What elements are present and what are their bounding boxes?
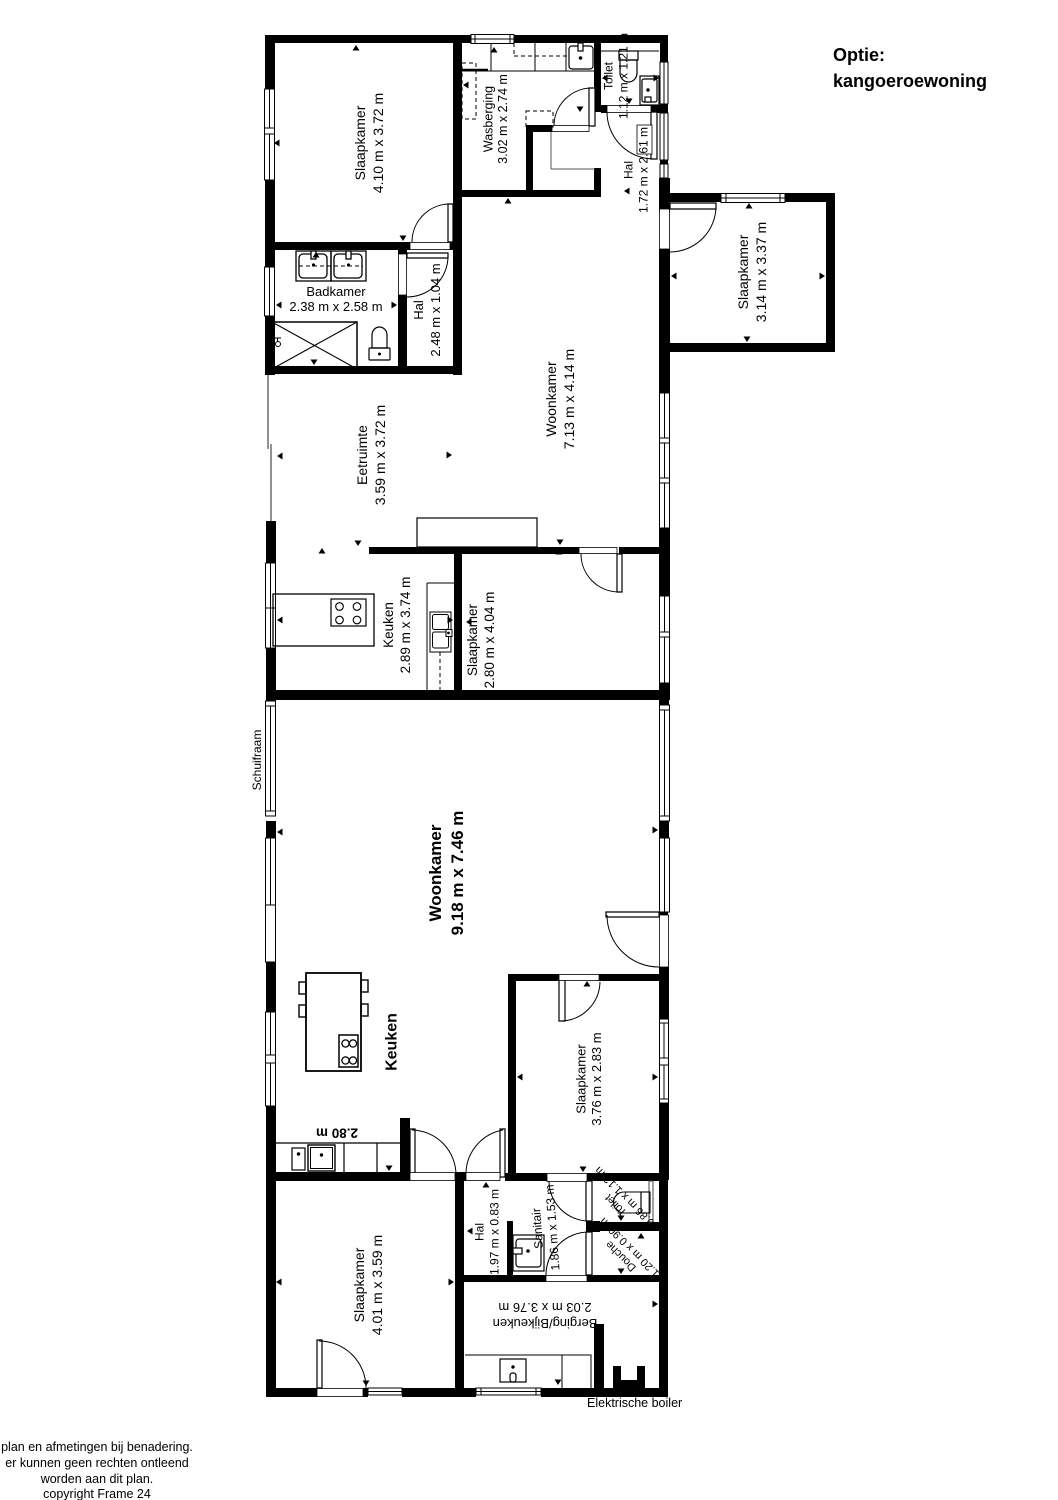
svg-text:Hal: Hal <box>411 300 426 320</box>
svg-text:4.01 m x 3.59 m: 4.01 m x 3.59 m <box>369 1235 385 1335</box>
svg-text:Hal: Hal <box>473 1223 487 1241</box>
svg-text:Optie:: Optie: <box>833 45 885 65</box>
svg-text:2.80 m: 2.80 m <box>316 1126 358 1141</box>
svg-text:Hal: Hal <box>622 161 636 179</box>
svg-text:3.76 m x 2.83 m: 3.76 m x 2.83 m <box>589 1032 604 1125</box>
svg-text:Badkamer: Badkamer <box>306 284 366 299</box>
svg-text:Elektrische boiler: Elektrische boiler <box>587 1396 682 1410</box>
svg-text:Slaapkamer: Slaapkamer <box>351 1247 367 1322</box>
svg-text:Keuken: Keuken <box>384 1013 401 1071</box>
svg-text:9.18 m x 7.46 m: 9.18 m x 7.46 m <box>448 811 467 936</box>
svg-text:7.13 m x 4.14 m: 7.13 m x 4.14 m <box>561 349 577 449</box>
svg-text:4.10 m x 3.72 m: 4.10 m x 3.72 m <box>370 93 386 193</box>
svg-text:kangoeroewoning: kangoeroewoning <box>833 71 987 91</box>
svg-text:1.97 m x 0.83 m: 1.97 m x 0.83 m <box>488 1189 502 1275</box>
svg-text:Wasberging: Wasberging <box>482 86 496 152</box>
svg-text:plan en afmetingen bij benader: plan en afmetingen bij benadering. <box>1 1440 193 1454</box>
svg-text:Keuken: Keuken <box>381 602 396 648</box>
svg-text:3.59 m x 3.72 m: 3.59 m x 3.72 m <box>372 405 388 505</box>
svg-text:2.38 m x 2.58 m: 2.38 m x 2.58 m <box>289 299 382 314</box>
svg-text:Eetruimte: Eetruimte <box>354 425 370 485</box>
svg-text:Toilet: Toilet <box>602 61 616 90</box>
svg-text:Slaapkamer: Slaapkamer <box>465 603 480 676</box>
svg-text:2.03 m x 3.76 m: 2.03 m x 3.76 m <box>498 1300 591 1315</box>
svg-text:3.02 m x 2.74 m: 3.02 m x 2.74 m <box>496 74 510 164</box>
svg-text:copyright Frame 24: copyright Frame 24 <box>43 1487 151 1500</box>
svg-text:Slaapkamer: Slaapkamer <box>352 105 368 180</box>
svg-text:1.72 m x 2.61 m: 1.72 m x 2.61 m <box>637 127 651 213</box>
svg-text:Woonkamer: Woonkamer <box>543 361 559 437</box>
svg-text:3.14 m x 3.37 m: 3.14 m x 3.37 m <box>753 222 769 322</box>
svg-text:worden aan dit plan.: worden aan dit plan. <box>40 1472 154 1486</box>
svg-text:Woonkamer: Woonkamer <box>426 824 445 921</box>
svg-text:Slaapkamer: Slaapkamer <box>735 234 751 309</box>
svg-text:er kunnen geen rechten ontleen: er kunnen geen rechten ontleend <box>5 1456 189 1470</box>
svg-text:Sanitair: Sanitair <box>529 1208 546 1250</box>
svg-text:2.80 m x 4.04 m: 2.80 m x 4.04 m <box>482 592 497 689</box>
svg-text:2.48 m x 1.04 m: 2.48 m x 1.04 m <box>428 263 443 356</box>
svg-text:Schuifraam: Schuifraam <box>250 730 264 791</box>
svg-text:Berging/Bijkeuken: Berging/Bijkeuken <box>493 1316 598 1331</box>
svg-text:2.89 m x 3.74 m: 2.89 m x 3.74 m <box>398 577 413 674</box>
svg-text:1.12 m x 1.21 m: 1.12 m x 1.21 m <box>617 33 631 119</box>
svg-text:Slaapkamer: Slaapkamer <box>574 1044 589 1114</box>
